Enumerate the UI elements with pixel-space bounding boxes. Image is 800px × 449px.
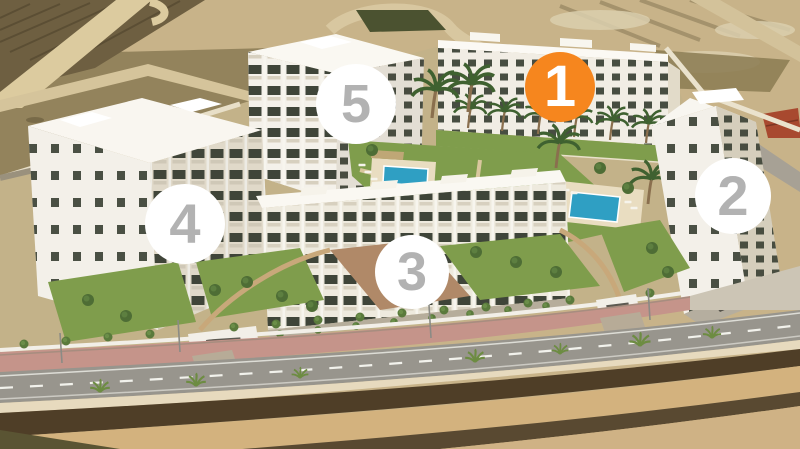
aerial-site-plan: 1 2 3 4 5	[0, 0, 800, 449]
marker-number: 4	[169, 196, 200, 252]
building-marker-5[interactable]: 5	[316, 64, 396, 144]
site-render	[0, 0, 800, 449]
pool-2	[569, 192, 620, 222]
marker-number: 1	[544, 58, 576, 116]
building-marker-2[interactable]: 2	[695, 158, 771, 234]
building-marker-3[interactable]: 3	[375, 235, 449, 309]
marker-number: 3	[397, 245, 427, 299]
building-marker-1[interactable]: 1	[525, 52, 595, 122]
building-marker-4[interactable]: 4	[145, 184, 225, 264]
marker-number: 2	[717, 168, 748, 224]
marker-number: 5	[341, 77, 371, 131]
